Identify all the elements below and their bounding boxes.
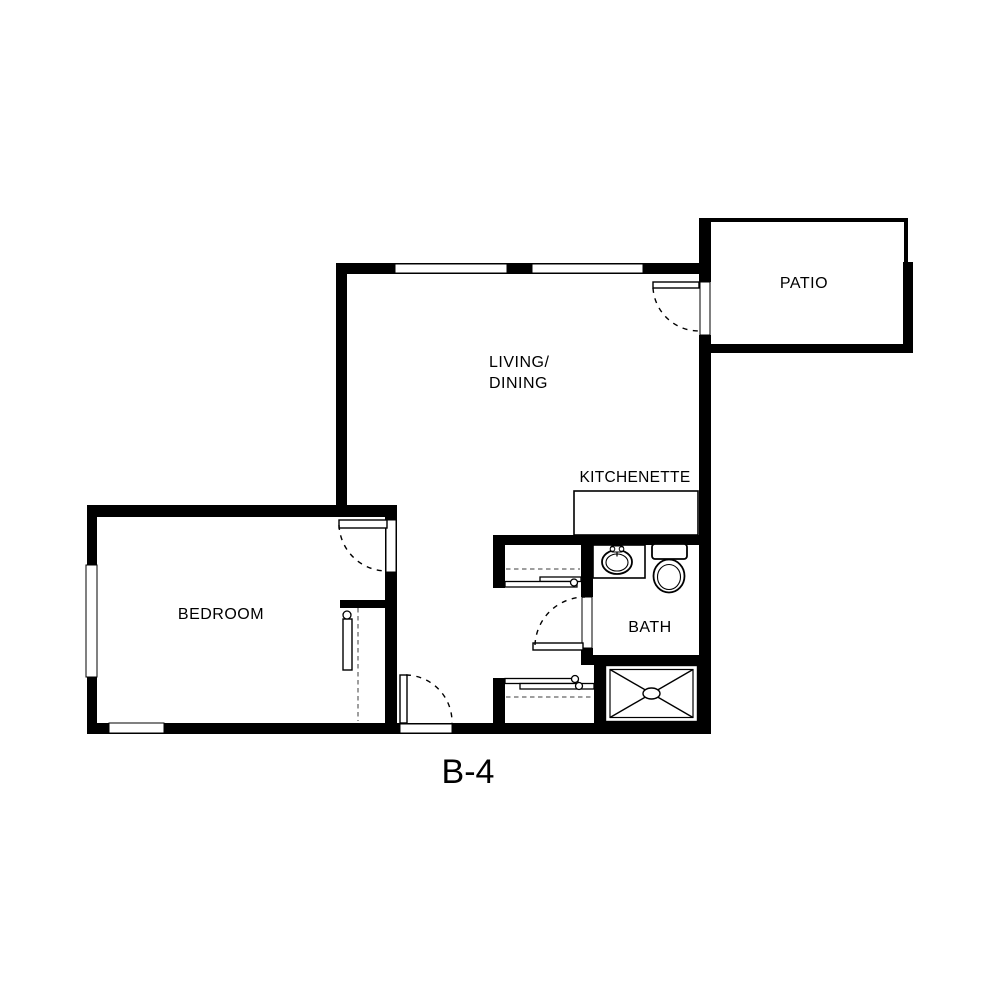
toilet-tank (652, 544, 687, 559)
bedroom-closet-door-knob (343, 611, 351, 619)
bath-door-opening (582, 597, 592, 648)
wall-living-left (336, 263, 347, 517)
patio-door-opening (700, 282, 710, 335)
sink-faucet-handle-right (619, 547, 624, 552)
wall-patio-top-thin (699, 218, 908, 222)
patio-door (653, 282, 710, 335)
bedroom-door-swing-arc (339, 525, 386, 571)
hall-closet-lower-slider-knob-2 (576, 683, 583, 690)
shower-drain (643, 688, 660, 699)
bedroom-closet (343, 608, 358, 721)
wall-bedroom-top (87, 505, 397, 517)
room-label-living-line1: LIVING/ (489, 354, 549, 371)
bath-door-leaf (533, 643, 583, 650)
hall-closet-upper (505, 569, 581, 587)
patio-door-leaf (653, 282, 699, 288)
room-label-bedroom: BEDROOM (178, 606, 264, 623)
wall-patio-left (699, 218, 711, 282)
toilet (652, 544, 687, 593)
windows (86, 264, 643, 733)
wall-living-right (699, 335, 711, 734)
patio-door-swing-arc (653, 288, 699, 331)
room-label-patio: PATIO (780, 275, 828, 292)
wall-closet1-left (493, 535, 505, 588)
window-bedroom-left (86, 565, 97, 677)
plan-title: B-4 (442, 753, 495, 791)
wall-shower-north (581, 655, 699, 665)
entry-door-leaf (400, 675, 407, 723)
room-label-kitchenette: KITCHENETTE (580, 469, 691, 486)
wall-living-top (336, 263, 711, 274)
bedroom-door-leaf (339, 520, 387, 528)
floor-plan-drawing: LIVING/ DINING BEDROOM KITCHENETTE BATH … (0, 0, 1000, 1000)
sink-faucet-handle-left (610, 547, 615, 552)
walls (87, 218, 913, 734)
room-label-living-line2: DINING (489, 375, 548, 392)
room-label-bath: BATH (628, 619, 671, 636)
entry-door-opening (400, 724, 452, 733)
window-bedroom-bottom (109, 723, 164, 733)
entry-door-swing-arc (406, 675, 452, 723)
hall-closet-upper-slider-knob (571, 579, 578, 586)
toilet-bowl-inner (658, 565, 681, 590)
window-living-1 (395, 264, 507, 273)
bedroom-door (339, 520, 396, 572)
bath-door (533, 597, 592, 650)
wall-bath-west-upper (581, 535, 593, 597)
hall-closet-lower (505, 676, 594, 698)
bath-door-swing-arc (535, 597, 585, 645)
kitchenette-counter-outline (574, 491, 698, 535)
bedroom-closet-door (343, 619, 352, 670)
bathroom-sink (593, 545, 645, 578)
shower (605, 665, 698, 722)
wall-patio-bottom (699, 344, 913, 353)
wall-patio-right-thick (903, 262, 913, 353)
hall-closet-lower-slider-panel-1 (505, 679, 578, 684)
kitchenette-counter (574, 491, 698, 535)
entry-door (400, 675, 452, 733)
floor-plan-page: LIVING/ DINING BEDROOM KITCHENETTE BATH … (0, 0, 1000, 1000)
hall-closet-lower-slider-knob-1 (572, 676, 579, 683)
wall-closet2-right (594, 665, 605, 723)
sink-basin-inner (606, 554, 628, 571)
wall-closet2-left (493, 678, 505, 723)
wall-bedroom-closet-stub (340, 600, 385, 608)
hall-closet-upper-slider-panel-2 (505, 582, 577, 588)
wall-patio-right-thin (904, 218, 908, 262)
window-living-2 (532, 264, 643, 273)
wall-bottom (87, 723, 711, 734)
